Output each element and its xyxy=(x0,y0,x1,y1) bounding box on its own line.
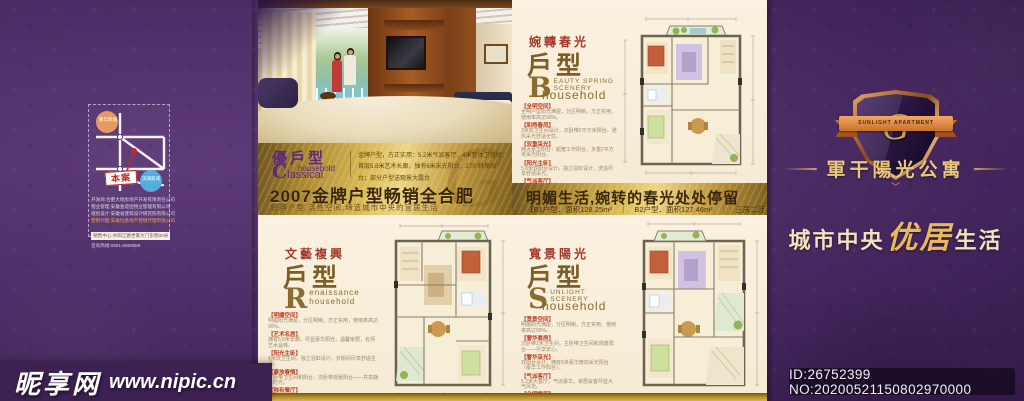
classic-en-sub: household xyxy=(298,164,335,173)
stock-id-text: ID:26752399 NO:20200521150802970000 xyxy=(789,367,1015,397)
brand-slogan: 城市中央优居生活 xyxy=(767,212,1024,257)
credit-line-sales-center: 销售中心:水阳江路世家大门东侧30米 xyxy=(91,232,170,239)
section-r-en-line2: household xyxy=(309,297,359,306)
r-bottom-gold-bar xyxy=(258,393,512,401)
bullet-text: 主卧带卫生间和阳台，次卧带观景阳台——共享静谧时光。 xyxy=(268,376,378,387)
section-r-en-line1: enaissance xyxy=(309,288,359,297)
ribbon-banner: SUNLIGHT APARTMENT xyxy=(839,116,953,131)
photo-tv xyxy=(386,36,426,70)
section-b-en-sub: household xyxy=(542,88,606,102)
map-site-label: 本案 xyxy=(105,170,138,186)
bullet-text: 次卧带2米卫生间，主卧带卫生间和观景阳台——尽享安心。 xyxy=(521,342,617,353)
classic-label: 優戶型 Classical household xyxy=(272,147,326,180)
photo-cabinet-shelf xyxy=(384,84,444,92)
brand-flourish-left xyxy=(783,168,817,170)
watermark-bar: 昵享网 www.nipic.cn xyxy=(0,363,272,401)
floorplan-r-image xyxy=(372,221,512,399)
section-s-bullets: 【宽景空间】明媚阳光满屋，分区明晰，方正实用，使用率高达90%。 【奢华套房】次… xyxy=(521,317,617,401)
classic-gold-band: G 優戶型 Classical household 金牌户型，方正实用：5.2米… xyxy=(258,143,512,215)
classic-description: 金牌户型，方正实用：5.2米气派客厅，4米整体卫浴间； 首层5.8米艺术长廊，独… xyxy=(358,151,508,185)
bullet-text: 全明户型阳光满屋，分区明晰，方正实用，使用率高达90%。 xyxy=(521,110,617,121)
developer-credits: 开发商:合肥大地房地产开发有限责任公司 物业管理:安徽金谊恒物业管理有限公司 规… xyxy=(91,196,167,250)
classic-subline: 经典户型,活性空间,缔造城市中央的宜居生活 xyxy=(271,202,439,213)
panel-b-household: 婉轉春光 戶型 B EAUTY SPRINGSCENERY household … xyxy=(512,0,767,183)
b-gold-band: 明媚生活,婉转的春光处处停留 【B1户型．面积128.25m² ｜ B2户型．面… xyxy=(512,183,767,215)
classic-desc-line1: 金牌户型，方正实用：5.2米气派客厅，4米整体卫浴间； xyxy=(358,151,508,162)
bullet-text: 两大豪华阳台：超宽工作阳台，多重2平方米采光阳台。 xyxy=(521,148,617,159)
hero-photo xyxy=(258,0,512,143)
location-map-card: 繁华新城 滨湖新城 本案 开发商:合肥大地房地产开发有限责任公司 物业管理:安徽… xyxy=(88,104,170,237)
brand-name-text: 軍干陽光公寓 xyxy=(826,155,964,182)
bullet-text: 双阳台设计，拥有6米豪华南向采光阳台（豪华工作阳台）。 xyxy=(521,361,617,372)
s-bottom-gold-bar xyxy=(512,393,767,401)
brand-name: 軍干陽光公寓 xyxy=(767,155,1024,182)
bullet-text: 5.8米双阳台设计，独立浴缸设计，洗浴尽享舒适采光。 xyxy=(521,167,617,178)
bullet-text: 明媚阳光满屋，分区明晰，方正实用，使用率高达90%。 xyxy=(521,323,617,334)
section-b-en-line1: EAUTY SPRING xyxy=(554,78,614,85)
brand-panel: G SUNLIGHT APARTMENT 軍干陽光公寓 ﹀ 城市中央优居生活 I… xyxy=(767,0,1024,401)
map-landmark-bottom-label: 滨湖新城 xyxy=(140,177,162,182)
bullet-text: 3米双卫生间设计，次卧带2平方米阳台，通风采光舒适无忧。 xyxy=(521,129,617,140)
floorplan-s-image xyxy=(618,219,768,401)
slogan-post: 生活 xyxy=(955,223,1003,255)
classic-label-en: Classical household xyxy=(272,168,326,180)
classic-en-initial: C xyxy=(272,161,287,183)
section-s-en-sub: household xyxy=(542,299,606,313)
credit-line: 物业管理:安徽金谊恒物业管理有限公司 xyxy=(91,203,167,210)
credit-line: 规划设计:安徽省建筑设计研究院有限公司 xyxy=(91,210,167,217)
brochure-canvas: 繁华新城 滨湖新城 本案 开发商:合肥大地房地产开发有限责任公司 物业管理:安徽… xyxy=(0,0,1024,401)
floorplan-b-image xyxy=(616,14,762,178)
photo-picture-frame xyxy=(484,44,508,64)
watermark-site-url: www.nipic.cn xyxy=(109,371,236,394)
ribbon-text: SUNLIGHT APARTMENT xyxy=(839,116,953,131)
section-s-en-line1: UNLIGHT xyxy=(550,289,588,296)
photo-cabinet-shelf xyxy=(384,20,444,30)
slogan-pre: 城市中央 xyxy=(788,223,884,255)
bullet-text: 4米双卫生间，独立浴缸设计，衣帽间尽享舒适生活。 xyxy=(268,357,378,368)
panel-r-household: 文藝複興 戶型 R enaissancehousehold 【明媚空间】明媚阳光… xyxy=(258,215,512,401)
section-r-en-name: R enaissancehousehold xyxy=(284,287,360,311)
stock-id-badge: ID:26752399 NO:20200521150802970000 xyxy=(789,368,1015,395)
credit-line: 开发商:合肥大地房地产开发有限责任公司 xyxy=(91,196,167,203)
panel-crease xyxy=(252,0,258,401)
bullet-text: 拥有5.8米长廊，尽显豪华阳光，温馨家居，名师艺术品味。 xyxy=(268,338,378,349)
brand-ornament: ﹀ xyxy=(767,180,1024,193)
bullet-text: 5.2米大客厅，气派豪华，家居会客尽显大气风范。 xyxy=(521,380,617,391)
photo-corner-fold xyxy=(258,0,348,90)
classic-divider xyxy=(350,151,351,177)
watermark-site-name: 昵享网 xyxy=(14,364,101,401)
bullet-text: 明媚阳光满屋，分区明晰，方正实用，使用率高达90%。 xyxy=(268,319,378,330)
map-landmark-top-label: 繁华新城 xyxy=(97,118,119,123)
panel-s-household: 寬景陽光 戶型 S UNLIGHTSCENERY household 【宽景空间… xyxy=(512,215,767,401)
b-band-subline: 【B1户型．面积128.25m² ｜ B2户型．面积127.46m² ｜ 三房二… xyxy=(526,204,767,215)
credit-line: 营销代理:安徽恒基地产营销代理有限公司 xyxy=(91,217,167,224)
credit-line-hotline: 咨询热线:0551-5558888 xyxy=(91,242,167,249)
brand-flourish-right xyxy=(974,168,1008,170)
section-r-en-initial: R xyxy=(284,287,307,311)
section-r-bullets: 【明媚空间】明媚阳光满屋，分区明晰，方正实用，使用率高达90%。 【艺术名居】拥… xyxy=(268,313,378,401)
slogan-emphasis: 优居 xyxy=(887,212,953,257)
